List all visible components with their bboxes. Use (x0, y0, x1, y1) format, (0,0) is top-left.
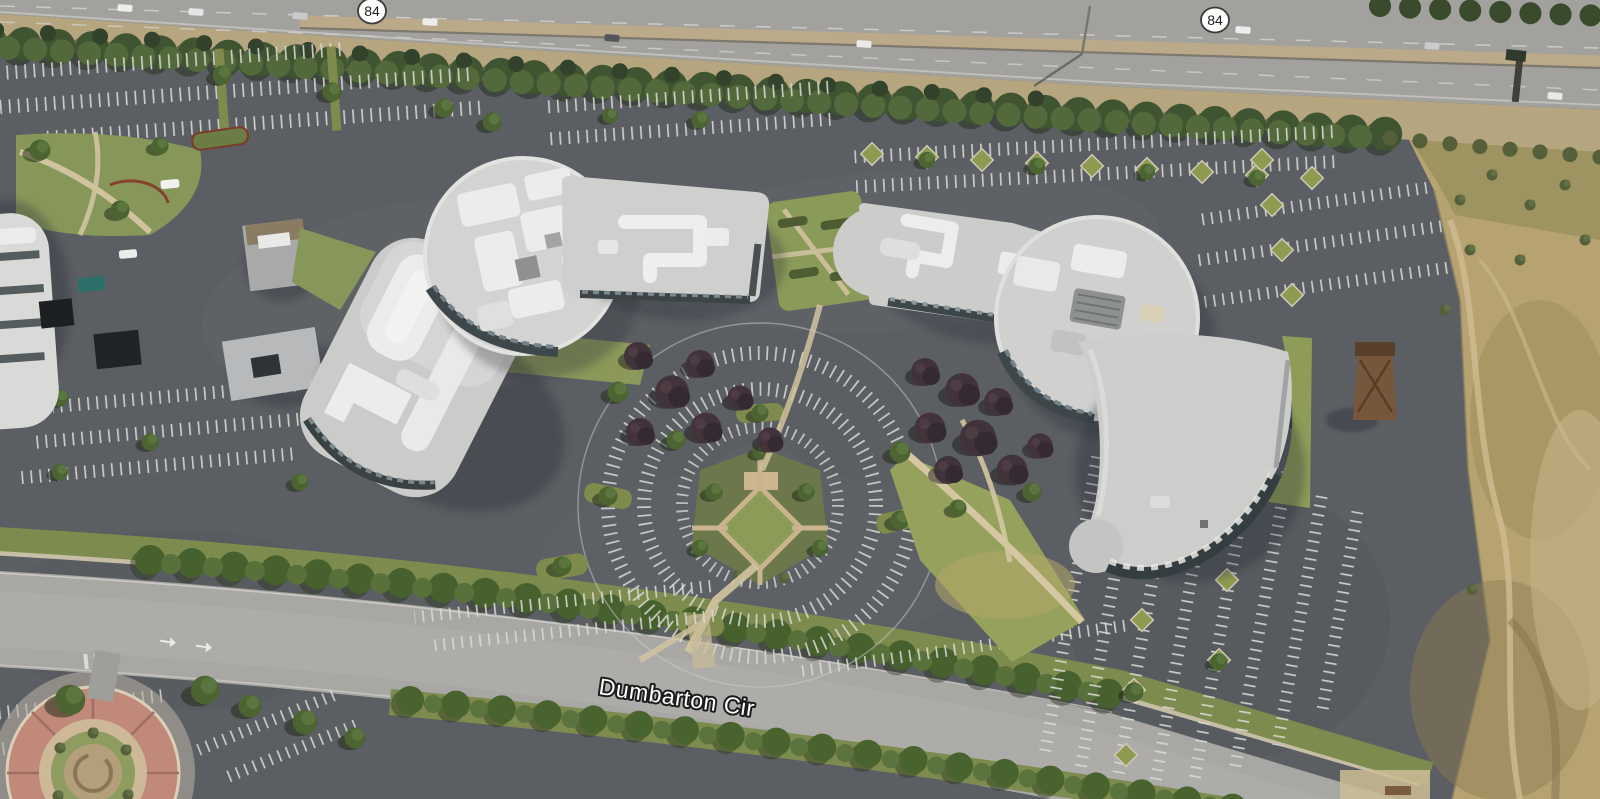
shed (93, 330, 141, 370)
satellite-map-canvas[interactable]: Dumbarton Cir 84 84 (0, 0, 1600, 799)
satellite-map-view[interactable]: Dumbarton Cir 84 84 (0, 0, 1600, 799)
parked-van (119, 249, 138, 259)
route-84-shield-west: 84 (358, 0, 386, 24)
shed (39, 298, 75, 328)
route-84-shield-text: 84 (364, 3, 380, 19)
parked-van (160, 179, 179, 189)
building-c-north-rect (562, 176, 769, 302)
route-84-shield-text: 84 (1207, 12, 1223, 28)
dumpster (77, 276, 105, 293)
route-84-shield-east: 84 (1201, 8, 1229, 33)
